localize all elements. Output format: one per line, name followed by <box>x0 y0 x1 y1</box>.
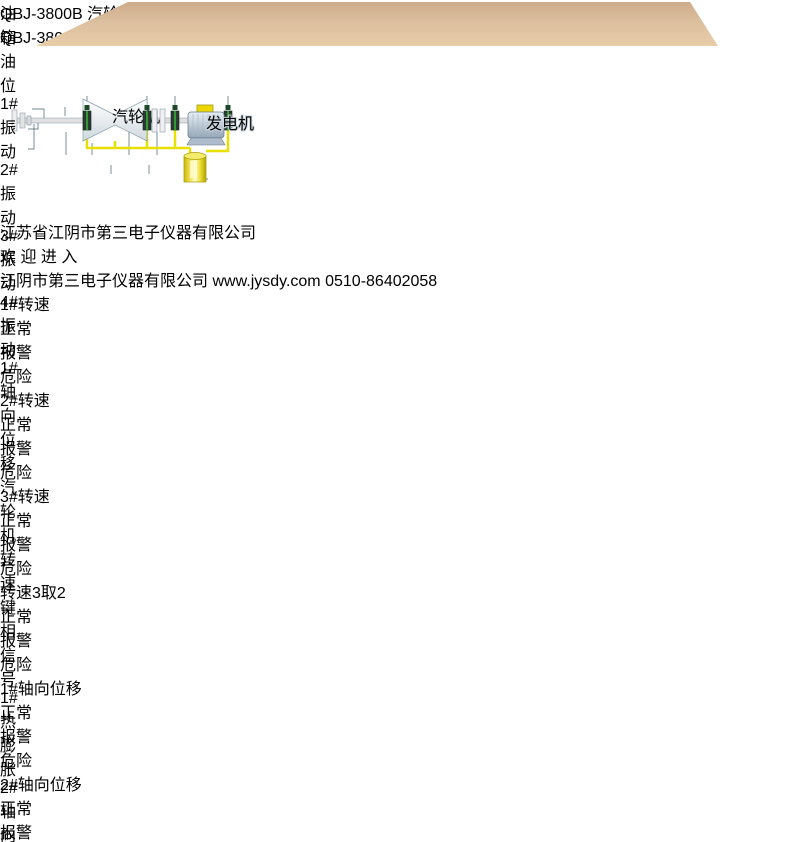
device-frame: QBJ-3800B 汽轮机安全监测保护系统 QBJ-3800B 旋转机械安全监测… <box>0 0 800 421</box>
indicator-row: 危险 <box>0 651 800 675</box>
indicator-group: 2#轴向位移正常报警危险 <box>0 771 800 842</box>
diagram-panel: QBJ-3800B 旋转机械安全监测保护系统TSI分布图 <box>0 24 800 267</box>
front-bezel: QBJ-3800B 汽轮机安全监测保护系统 QBJ-3800B 旋转机械安全监测… <box>0 0 800 842</box>
diagram-label: 3#振动 <box>0 228 26 294</box>
indicator-group: 转速3取2正常报警危险 <box>0 579 800 675</box>
indicator-row: 正常 <box>0 507 800 531</box>
indicator-row: 报警 <box>0 531 800 555</box>
indicator-group: 1#轴向位移正常报警危险 <box>0 675 800 771</box>
indicator-row: 危险 <box>0 555 800 579</box>
indicator-group: 3#转速正常报警危险 <box>0 483 800 579</box>
panel-column-2: 1#轴向位移正常报警危险2#轴向位移正常报警危险胀差正常报警危险偏心正常报警危险 <box>0 675 800 842</box>
indicator-row: 危险 <box>0 747 800 771</box>
indicator-row: 正常 <box>0 699 800 723</box>
display-panel: QBJ-3800B 汽轮机安全监测保护系统 QBJ-3800B 旋转机械安全监测… <box>0 0 800 842</box>
diagram-label: 4#振动 <box>0 294 26 360</box>
indicator-row: 报警 <box>0 627 800 651</box>
indicator-group-title: 2#轴向位移 <box>0 771 800 795</box>
indicator-row: 危险 <box>0 459 800 483</box>
indicator-row: 正常 <box>0 795 800 819</box>
diagram-label: 1#轴向位移 <box>0 360 30 474</box>
diagram-label: 2#轴向位移 <box>0 780 27 842</box>
diagram-labels: 油箱油位 1#振动2#振动3#振动4#振动1#轴向位移汽轮机转速键相信号1#热膨… <box>0 0 800 421</box>
diagram-label: 汽轮机转速 <box>0 474 30 594</box>
tank-label: 油箱油位 <box>0 0 28 96</box>
indicator-group-title: 3#转速 <box>0 483 800 507</box>
diagram-label: 2#振动 <box>0 162 26 228</box>
indicator-row: 报警 <box>0 435 800 459</box>
diagram-label: 1#振动 <box>0 96 26 162</box>
diagram-label: 1#热膨胀 <box>0 690 27 780</box>
indicator-row: 报警 <box>0 819 800 842</box>
diagram-label: 键相信号 <box>0 594 27 690</box>
indicator-row: 报警 <box>0 723 800 747</box>
indicator-row: 正常 <box>0 603 800 627</box>
indicator-group-title: 1#轴向位移 <box>0 675 800 699</box>
touch-screen: QBJ-3800B 汽轮机安全监测保护系统 QBJ-3800B 旋转机械安全监测… <box>0 0 800 291</box>
indicator-group-title: 转速3取2 <box>0 579 800 603</box>
